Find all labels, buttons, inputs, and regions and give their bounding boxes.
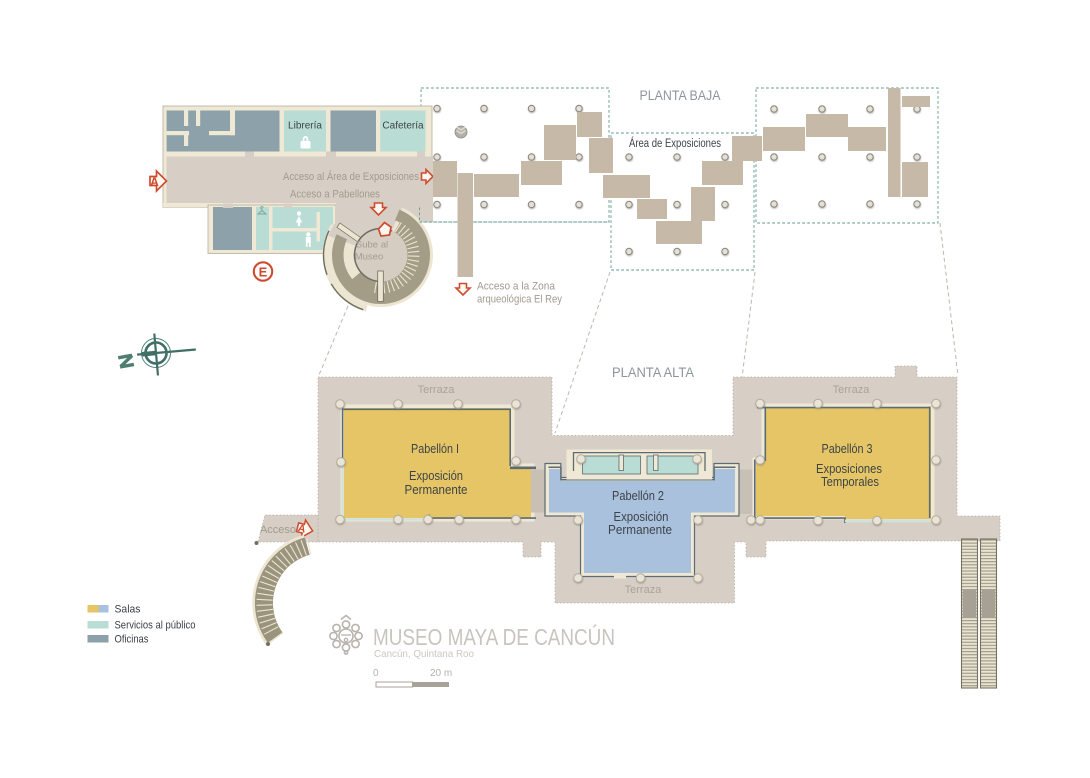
svg-text:Acceso a Pabellones: Acceso a Pabellones bbox=[290, 189, 380, 201]
svg-text:0: 0 bbox=[373, 668, 379, 679]
svg-text:Museo: Museo bbox=[355, 252, 384, 263]
svg-text:Terraza: Terraza bbox=[418, 384, 456, 396]
svg-text:Exposiciones: Exposiciones bbox=[816, 462, 882, 476]
svg-text:Permanente: Permanente bbox=[405, 483, 468, 497]
svg-text:Salas: Salas bbox=[115, 604, 141, 616]
svg-text:Terraza: Terraza bbox=[833, 384, 871, 396]
svg-text:A: A bbox=[150, 175, 159, 189]
svg-text:Exposición: Exposición bbox=[614, 510, 669, 524]
svg-text:Pabellón 2: Pabellón 2 bbox=[612, 489, 664, 503]
svg-text:Cafetería: Cafetería bbox=[382, 121, 424, 132]
svg-text:Cancún, Quintana Roo: Cancún, Quintana Roo bbox=[374, 648, 474, 660]
svg-text:Librería: Librería bbox=[288, 121, 322, 132]
svg-text:PLANTA ALTA: PLANTA ALTA bbox=[612, 365, 694, 380]
svg-text:MUSEO MAYA DE CANCÚN: MUSEO MAYA DE CANCÚN bbox=[373, 624, 615, 650]
svg-text:Permanente: Permanente bbox=[608, 523, 672, 537]
svg-text:20 m: 20 m bbox=[430, 668, 452, 679]
svg-text:Exposición: Exposición bbox=[409, 469, 463, 483]
svg-text:Pabellón 3: Pabellón 3 bbox=[822, 442, 873, 456]
svg-text:E: E bbox=[259, 265, 268, 280]
svg-text:Terraza: Terraza bbox=[625, 584, 663, 596]
svg-text:arqueológica El Rey: arqueológica El Rey bbox=[477, 294, 562, 306]
svg-text:Servicios al público: Servicios al público bbox=[115, 620, 196, 632]
svg-text:Sube al: Sube al bbox=[356, 240, 388, 251]
svg-text:Temporales: Temporales bbox=[821, 475, 879, 489]
svg-text:Oficinas: Oficinas bbox=[115, 634, 149, 646]
svg-text:Acceso a la Zona: Acceso a la Zona bbox=[477, 281, 556, 293]
svg-text:Pabellón I: Pabellón I bbox=[411, 442, 459, 456]
svg-text:PLANTA BAJA: PLANTA BAJA bbox=[640, 88, 721, 103]
svg-text:Área de Exposiciones: Área de Exposiciones bbox=[629, 137, 721, 150]
svg-text:Acceso: Acceso bbox=[260, 524, 296, 536]
svg-text:Acceso al Área de Exposiciones: Acceso al Área de Exposiciones bbox=[283, 170, 419, 183]
